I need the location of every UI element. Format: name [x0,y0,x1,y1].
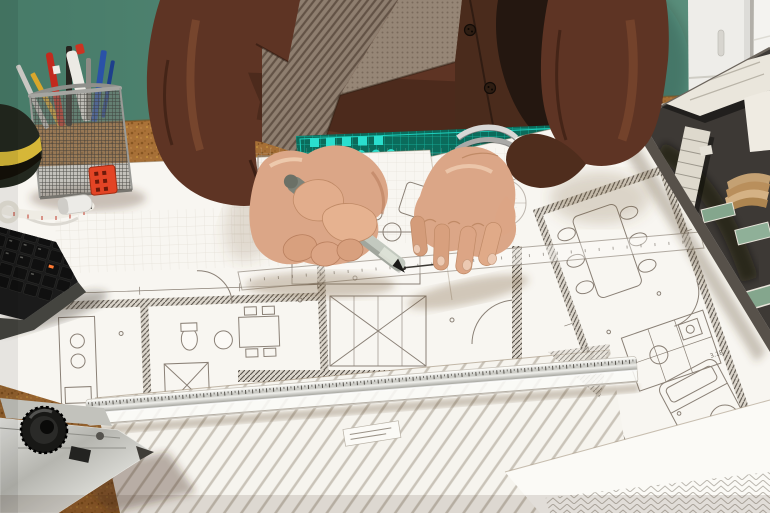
red-clip [89,165,118,196]
bottom-vignette [0,495,770,513]
scene-canvas: 3.18 [0,0,770,513]
nail-ring [437,256,445,266]
shirt-button-1 [465,25,476,36]
bolt [96,432,104,440]
left-vignette [0,0,18,513]
adjustment-knob [21,407,67,453]
mesh-cup-body [30,85,132,198]
red-pen-band [52,65,60,74]
shirt-button-2 [485,83,496,94]
photo-architect-desk: 3.18 [0,0,770,513]
